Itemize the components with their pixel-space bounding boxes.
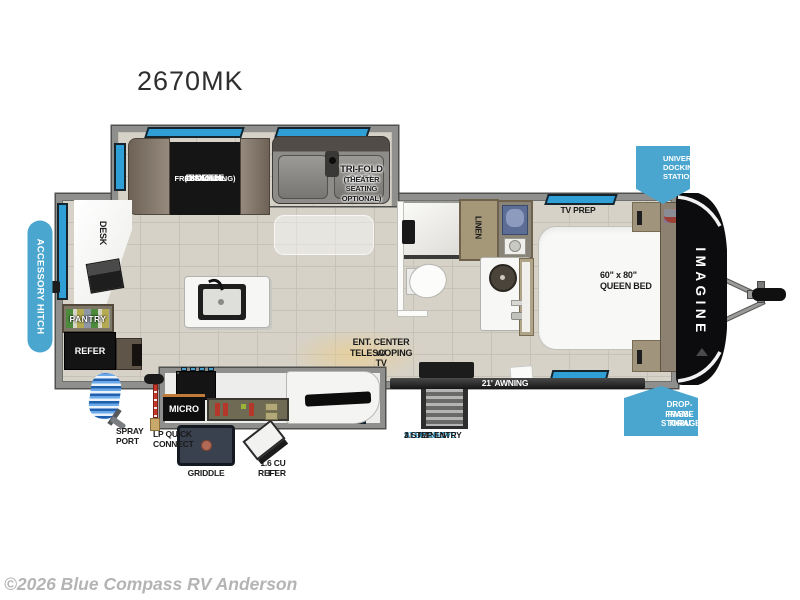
oven-indicator xyxy=(241,404,246,409)
lp-connector xyxy=(144,374,164,384)
griddle-label: GRIDDLE xyxy=(172,469,240,479)
bedroom-dresser-front xyxy=(522,262,530,332)
accessory-hitch-badge: ACCESSORY HITCH xyxy=(28,221,53,353)
interior-entry-step xyxy=(419,362,474,378)
refrigerator-door xyxy=(132,344,142,366)
nightstand xyxy=(632,202,662,232)
refrigerator-label: REFER xyxy=(75,346,106,356)
burner-grate xyxy=(177,372,179,374)
mini-fridge-label: 1.6 CU FT REFER xyxy=(228,458,288,468)
pantry-label: PANTRY xyxy=(70,314,107,324)
awning-label: 21' AWNING xyxy=(440,379,570,389)
drop-frame-storage-badge: DROP-FRAME PASS-THRU STORAGE xyxy=(624,386,698,436)
sofa-cushion xyxy=(278,155,328,199)
oven-button xyxy=(265,403,278,411)
oven-control-panel xyxy=(207,398,289,421)
tri-fold-sofa-label: TRI-FOLD SOFA (THEATER SEATING OPTIONAL) xyxy=(270,165,392,175)
dealer-watermark: ©2026 Blue Compass RV Anderson xyxy=(4,574,297,595)
stove-knob xyxy=(181,367,187,371)
sink-drain xyxy=(218,299,224,305)
pantry-shelves: PANTRY xyxy=(66,309,110,328)
booth-dinette-table: BOOTH DINETTE (OPTIONAL FREESTANDING) xyxy=(170,142,240,215)
booth-dinette-bench xyxy=(240,138,270,215)
laptop xyxy=(86,258,125,293)
oven-indicator xyxy=(223,403,228,416)
microwave: MICRO xyxy=(163,394,205,421)
imagine-brand-logo: IMAGINE xyxy=(692,234,710,350)
tv-prep-label: TV PREP xyxy=(540,206,616,216)
cabinet-handle xyxy=(637,350,642,364)
griddle-burner xyxy=(201,440,212,451)
oven-button xyxy=(265,412,278,420)
slideout-floor-mark xyxy=(274,215,374,255)
lp-quick-connect-label: LP QUICK CONNECT xyxy=(108,429,198,439)
oven-indicator xyxy=(215,403,220,416)
booth-dinette-bench xyxy=(128,138,170,215)
bathroom-wall xyxy=(397,201,404,317)
floorplan-page: 2670MK BOOTH DINETTE (OPTIONAL FREESTAND… xyxy=(0,0,800,600)
stove-knob xyxy=(208,367,214,371)
ent-center-label: ENT. CENTER w/ TELESCOPING TV xyxy=(288,337,412,348)
microwave-label: MICRO xyxy=(169,404,199,414)
cup-holder xyxy=(329,157,336,164)
cabinet-handle xyxy=(637,211,642,225)
queen-bed-label: 60" x 80" QUEEN BED xyxy=(545,270,655,281)
refrigerator: REFER xyxy=(64,332,116,370)
hitch-coupler xyxy=(752,288,786,301)
window xyxy=(544,194,618,205)
entry-steps xyxy=(421,389,468,429)
desk-label: DESK xyxy=(96,213,108,253)
washer-window xyxy=(506,209,524,227)
oven-indicator xyxy=(249,403,254,416)
pantry-cabinet: PANTRY xyxy=(62,304,114,333)
dryer-door xyxy=(509,240,521,252)
shower-fixture xyxy=(402,220,415,244)
stove-knob xyxy=(199,367,205,371)
stove-knob xyxy=(190,367,196,371)
nightstand xyxy=(632,340,662,372)
linen-label: LINEN xyxy=(473,209,484,247)
window xyxy=(114,143,126,191)
window xyxy=(144,127,245,138)
floorplan-model-title: 2670MK xyxy=(137,66,244,97)
bathroom-wall xyxy=(397,310,428,317)
lp-hose xyxy=(153,384,158,418)
vanity-sink-drain xyxy=(500,275,505,280)
